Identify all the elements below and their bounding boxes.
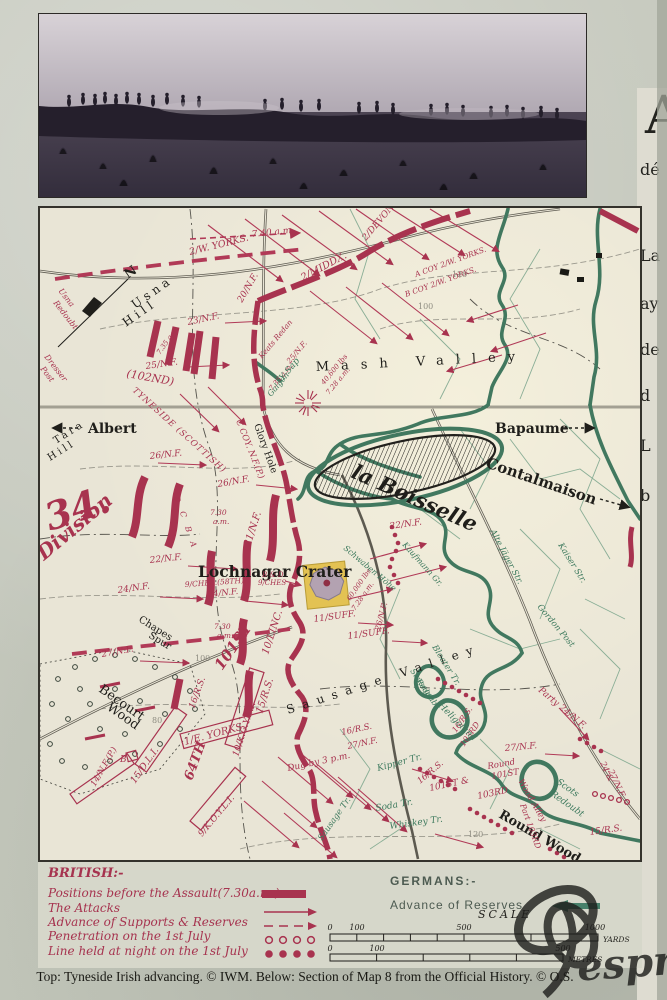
- label-22-nf-a: 22/N.F.: [148, 553, 182, 566]
- scale-metres-0: 0: [327, 944, 332, 953]
- label-company-c: C: [178, 510, 188, 518]
- label-whiskey-tr: Whiskey Tr.: [389, 815, 443, 832]
- label-kaiser-str: Kaiser Str.: [555, 540, 588, 585]
- label-25-nf: 25/N.F.: [144, 358, 179, 373]
- label-15-rs-a: 15/R.S.: [254, 677, 276, 715]
- label-contour-120a: 120: [452, 270, 467, 279]
- label-party-24-nf: Party 24/N.F.: [535, 685, 588, 731]
- photo-smoke: [159, 101, 279, 115]
- label-23-nf: 23/N.F.: [186, 311, 221, 328]
- label-9-koyli: 9/K.O.Y.L.I.: [197, 793, 238, 839]
- label-24-nf-a: 24/N.F.: [116, 582, 151, 597]
- photographer-watermark: esprez: [501, 867, 667, 1000]
- label-21-nf: 21/N.F.: [242, 510, 264, 549]
- trench-map: Albert Bapaume Contalmaison la Boisselle…: [38, 206, 642, 862]
- label-contalmaison: Contalmaison: [484, 454, 599, 509]
- label-contour-100a: 100: [418, 302, 433, 311]
- label-b-d-2: 9/CHES: [258, 579, 286, 587]
- label-company-a: A: [188, 539, 199, 548]
- label-24-and-2: 27/N.F.: [605, 767, 627, 800]
- label-730am-a1: 7.30: [210, 508, 227, 517]
- label-22-nf-b: 22/N.F.: [388, 518, 423, 533]
- label-gordon-post: Gordon Post: [535, 603, 577, 650]
- photo-sky: [39, 14, 586, 114]
- label-b-company: B.: [119, 755, 130, 765]
- trench-map-art: Albert Bapaume Contalmaison la Boisselle…: [40, 208, 640, 860]
- label-103rd-b: 103RD: [477, 786, 510, 802]
- label-contour-80: 80: [152, 716, 162, 725]
- label-kaufmann-gr: Kaufmann Gr.: [400, 540, 445, 588]
- scale-metres-100: 100: [369, 944, 384, 953]
- label-26-nf-b: 26/N.F.: [216, 474, 251, 490]
- label-contour-100b: 100: [195, 654, 210, 663]
- scale-yards-100: 100: [349, 923, 364, 932]
- label-albert: Albert: [87, 421, 137, 437]
- label-contour-120b: 120: [468, 830, 483, 839]
- label-sausage-tr: Sausage Tr.: [316, 796, 353, 843]
- label-dug-by-3pm: Dug by 3 p.m.: [286, 751, 352, 774]
- label-27-nf-b: 27/N.F.: [346, 736, 379, 752]
- photo-smoke-2: [399, 108, 539, 120]
- label-27-nf-a: 27/N.F.: [100, 644, 135, 660]
- interpretive-panel-photo: A dé La ay de d L b: [0, 0, 667, 1000]
- scale-yards-500: 500: [456, 923, 471, 932]
- watermark-text: esprez: [576, 934, 667, 991]
- battle-photo-art: [39, 14, 586, 197]
- label-730am-a2: a.m.: [213, 517, 229, 526]
- side-line-3: ay: [640, 294, 659, 313]
- label-102nd: (102ND): [125, 367, 175, 388]
- label-bapaume: Bapaume: [495, 421, 569, 437]
- label-27-nf-c: 27/N.F.: [503, 741, 537, 754]
- buildings: [560, 253, 602, 282]
- label-24-nf-b: 24/N.F.: [206, 587, 238, 600]
- label-company-b: B: [183, 524, 194, 533]
- attack-arrows: [140, 209, 588, 857]
- panel-right-edge-shadow: [657, 0, 667, 1000]
- label-26-nf-a: 26/N.F.: [148, 449, 182, 462]
- panel-caption: Top: Tyneside Irish advancing. © IWM. Be…: [20, 969, 590, 985]
- label-730am-b1: 7.30: [214, 622, 231, 631]
- label-16-rs-b: 16/R.S.: [341, 722, 373, 738]
- label-14-nf: 14/N.F.(P.): [88, 745, 119, 789]
- battle-photo: [38, 13, 587, 198]
- scale-yards-0: 0: [327, 923, 332, 932]
- label-11-suff-b: 11/SUFF.: [347, 626, 390, 642]
- mine-star-y-sap: [295, 390, 321, 416]
- label-b-d-1: B & D: [261, 571, 284, 579]
- label-tyneside-scottish: TYNESIDE (SCOTTISH): [130, 385, 229, 475]
- label-alte-jager-str: Alte Jäger Str.: [487, 527, 525, 586]
- label-740am: 7.40 a.m.: [251, 226, 294, 240]
- label-11-suff-a: 11/SUFF.: [313, 609, 356, 625]
- label-20-nf: 20/N.F.: [235, 271, 260, 305]
